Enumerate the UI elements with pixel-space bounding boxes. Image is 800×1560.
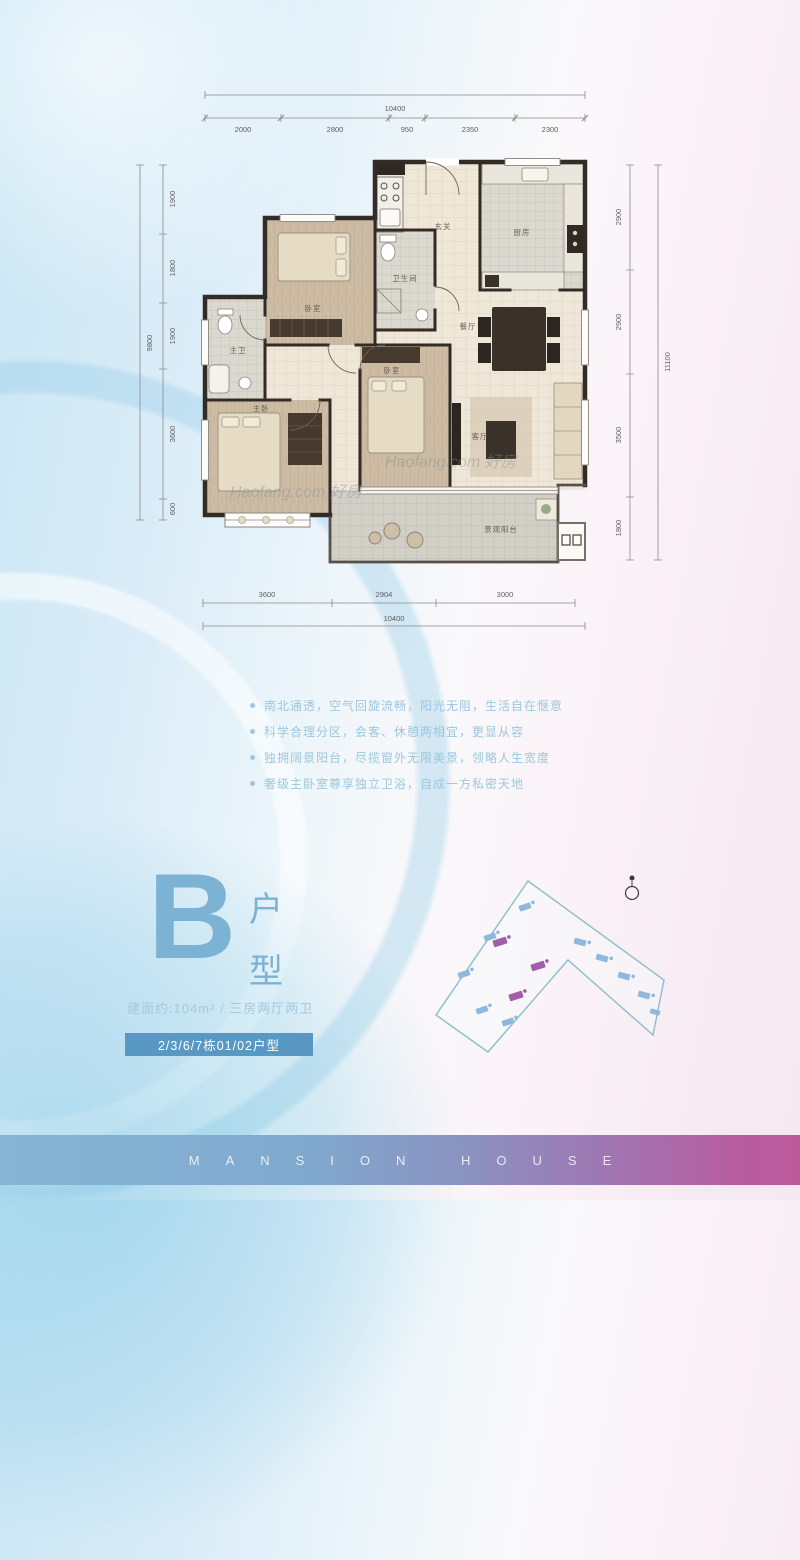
watermark: Haofang.com 好房 — [230, 483, 364, 501]
key-plan — [430, 862, 680, 1067]
dim-bottom-total: 10400 — [384, 614, 405, 623]
room-label-dining: 餐厅 — [460, 322, 477, 331]
dim-top-seg4: 2350 — [462, 125, 479, 134]
dim-right-total: 11100 — [663, 352, 672, 372]
floor-plan: 玄关 厨房 卫生间 卧室 主卫 主卧 卧室 餐厅 客厅 景观阳台 Haofang… — [130, 85, 690, 660]
bullet-icon — [250, 755, 255, 760]
dim-left-total: 9800 — [145, 335, 154, 352]
room-label-bedroom1: 卧室 — [305, 304, 322, 313]
unit-type-char-1: 户 — [249, 882, 285, 931]
dim-top-seg1: 2000 — [235, 125, 252, 134]
feature-text: 南北通透，空气回旋流畅，阳光无阻，生活自在惬意 — [264, 697, 563, 714]
bedroom2-furniture — [362, 347, 424, 453]
room-label-living: 客厅 — [472, 432, 489, 441]
room-label-bedroom2: 卧室 — [384, 366, 401, 375]
feature-item: 独拥阔景阳台，尽揽窗外无限美景，领略人生宽度 — [250, 744, 580, 770]
feature-item: 科学合理分区，会客、休憩两相宜，更显从容 — [250, 718, 580, 744]
dim-top-total: 10400 — [385, 104, 406, 113]
feature-text: 独拥阔景阳台，尽揽窗外无限美景，领略人生宽度 — [264, 749, 550, 766]
feature-list: 南北通透，空气回旋流畅，阳光无阻，生活自在惬意 科学合理分区，会客、休憩两相宜，… — [250, 692, 580, 796]
dim-right-seg1: 2900 — [614, 209, 623, 226]
dim-left-seg1: 1900 — [168, 191, 177, 208]
room-label-kitchen: 厨房 — [514, 228, 531, 237]
feature-text: 奢级主卧室尊享独立卫浴，自成一方私密天地 — [264, 775, 524, 792]
dim-top-seg3: 950 — [401, 125, 414, 134]
dim-left-seg3: 1900 — [168, 328, 177, 345]
feature-item: 奢级主卧室尊享独立卫浴，自成一方私密天地 — [250, 770, 580, 796]
dim-left-seg5: 600 — [168, 503, 177, 516]
dim-right-seg3: 3500 — [614, 427, 623, 444]
dim-top-seg2: 2800 — [327, 125, 344, 134]
room-label-master-bedroom: 主卧 — [253, 404, 270, 413]
unit-letter: B — [148, 852, 236, 980]
feature-item: 南北通透，空气回旋流畅，阳光无阻，生活自在惬意 — [250, 692, 580, 718]
bullet-icon — [250, 781, 255, 786]
room-label-bathroom: 卫生间 — [392, 274, 417, 283]
bullet-icon — [250, 703, 255, 708]
building-outline — [436, 881, 664, 1052]
dim-left-seg4: 3600 — [168, 426, 177, 443]
entry-appliance-column — [375, 162, 405, 232]
feature-text: 科学合理分区，会客、休憩两相宜，更显从容 — [264, 723, 524, 740]
dim-left-seg2: 1800 — [168, 260, 177, 277]
unit-type-char-2: 型 — [249, 944, 285, 993]
dim-right-seg2: 2900 — [614, 314, 623, 331]
dim-bottom-seg3: 3000 — [497, 590, 514, 599]
floor-plan-drawing: 玄关 厨房 卫生间 卧室 主卫 主卧 卧室 餐厅 客厅 景观阳台 Haofang… — [130, 85, 690, 660]
north-compass-icon — [626, 876, 639, 900]
dim-bottom-seg2: 2904 — [376, 590, 393, 599]
dim-top-seg5: 2300 — [542, 125, 559, 134]
dim-right-seg4: 1800 — [614, 520, 623, 537]
unit-area-line: 建面约:104m² / 三房两厅两卫 — [127, 998, 313, 1017]
room-label-entry: 玄关 — [435, 222, 452, 231]
key-plan-drawing — [430, 862, 680, 1067]
unit-banner: 2/3/6/7栋01/02户型 — [125, 1033, 313, 1056]
watermark: Haofang.com 好房 — [385, 453, 519, 471]
brand-text: MANSION HOUSE — [163, 1153, 638, 1168]
ac-platform — [558, 523, 585, 560]
room-label-master-bath: 主卫 — [230, 346, 247, 355]
page: { "floor_plan": { "dims": { "top_total":… — [0, 0, 800, 1200]
bullet-icon — [250, 729, 255, 734]
dim-bottom-seg1: 3600 — [259, 590, 276, 599]
room-label-balcony: 景观阳台 — [484, 525, 518, 534]
footer-band: MANSION HOUSE — [0, 1135, 800, 1185]
